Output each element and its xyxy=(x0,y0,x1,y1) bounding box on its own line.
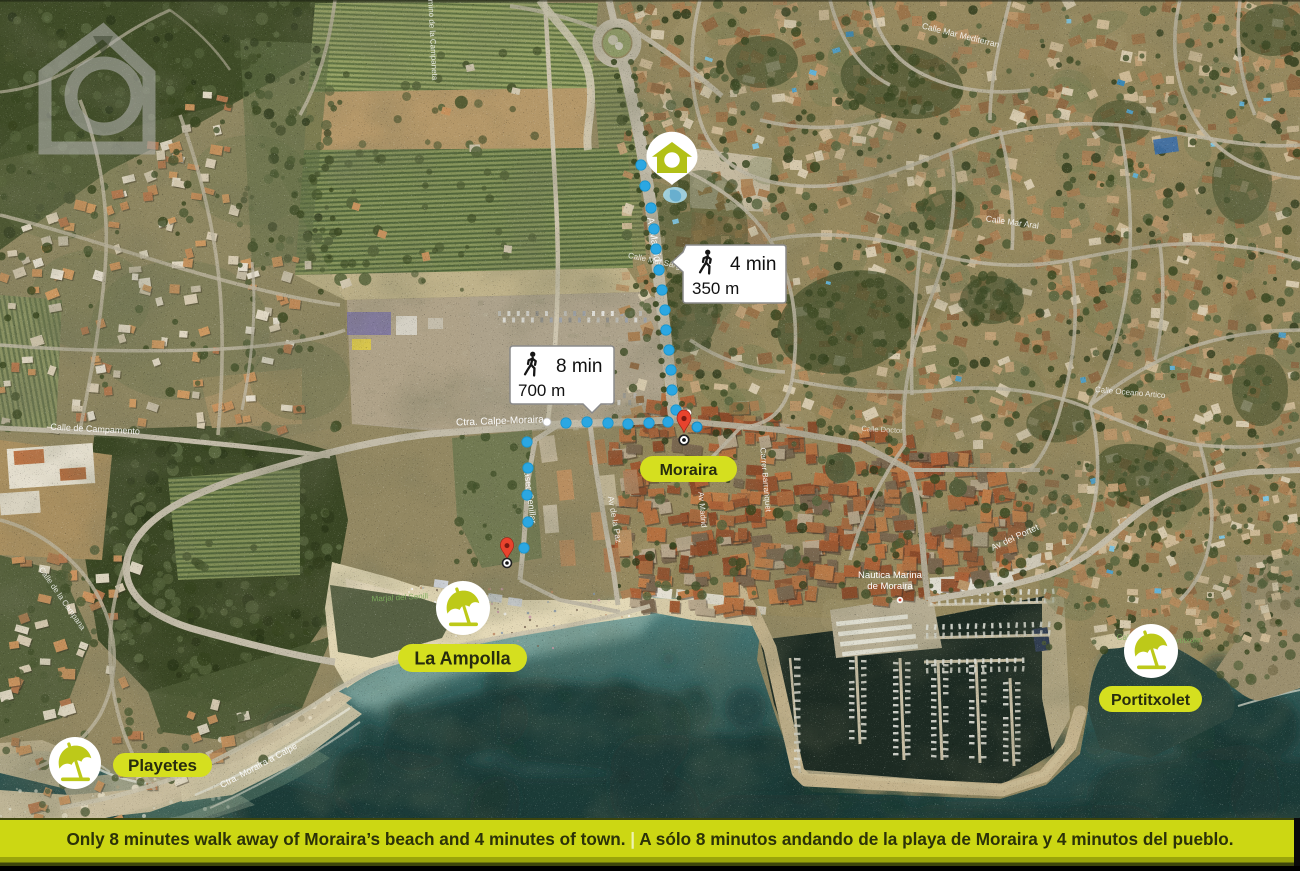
svg-text:700 m: 700 m xyxy=(518,381,565,400)
svg-text:La Ampolla: La Ampolla xyxy=(414,648,511,668)
svg-text:Nautica Marina: Nautica Marina xyxy=(858,570,923,581)
svg-text:4 min: 4 min xyxy=(730,254,776,275)
svg-text:de Moraira: de Moraira xyxy=(867,581,913,592)
svg-text:Moraira: Moraira xyxy=(660,462,718,479)
svg-text:Playetes: Playetes xyxy=(128,756,197,775)
svg-text:8 min: 8 min xyxy=(556,356,602,377)
svg-text:Only 8 minutes walk away of Mo: Only 8 minutes walk away of Moraira’s be… xyxy=(66,829,1233,849)
svg-text:Portitxolet: Portitxolet xyxy=(1111,692,1191,709)
svg-text:350 m: 350 m xyxy=(692,279,739,298)
